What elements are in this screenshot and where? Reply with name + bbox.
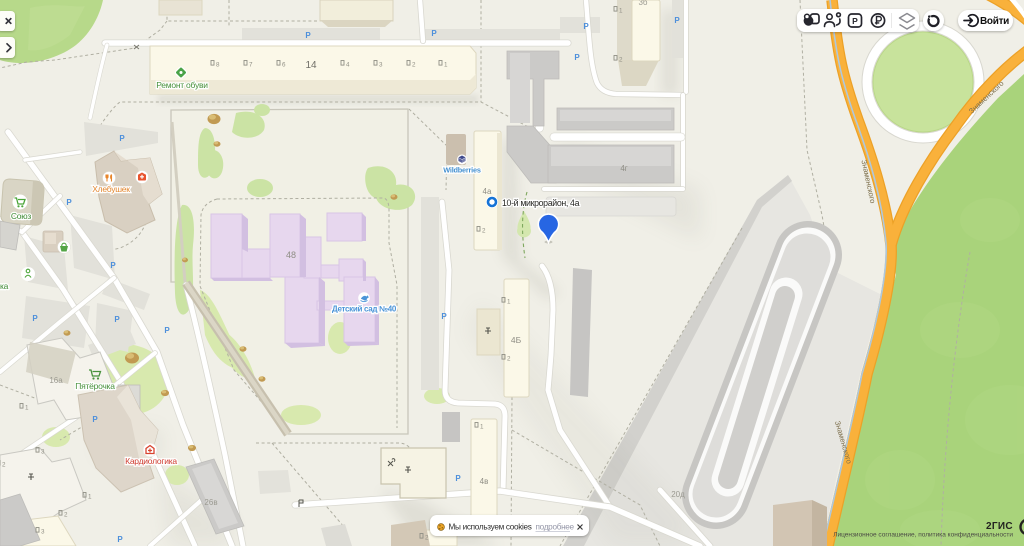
- svg-text:P: P: [852, 16, 858, 26]
- svg-text:16а: 16а: [49, 376, 63, 385]
- svg-text:P: P: [32, 314, 38, 323]
- svg-text:Ремонт обуви: Ремонт обуви: [156, 80, 208, 90]
- svg-text:Хлебушек: Хлебушек: [92, 184, 130, 194]
- svg-text:4а: 4а: [483, 187, 492, 196]
- svg-text:P: P: [66, 198, 72, 207]
- svg-text:1: 1: [507, 299, 511, 306]
- svg-text:P: P: [92, 415, 98, 424]
- svg-text:26в: 26в: [204, 498, 217, 507]
- svg-text:10-й микрорайон, 4а: 10-й микрорайон, 4а: [502, 198, 580, 208]
- svg-text:2: 2: [425, 535, 429, 542]
- svg-text:3: 3: [41, 529, 45, 536]
- svg-text:3: 3: [41, 449, 45, 456]
- svg-text:4Б: 4Б: [511, 335, 522, 345]
- svg-text:1: 1: [480, 424, 484, 431]
- svg-text:P: P: [455, 474, 461, 483]
- svg-text:P: P: [114, 315, 120, 324]
- svg-text:P: P: [117, 535, 123, 544]
- svg-text:3б: 3б: [638, 0, 647, 7]
- svg-text:2: 2: [2, 462, 6, 469]
- svg-text:Войти: Войти: [980, 16, 1009, 27]
- svg-text:2: 2: [412, 62, 416, 69]
- svg-text:1: 1: [444, 62, 448, 69]
- svg-text:Wildberries: Wildberries: [443, 166, 481, 175]
- svg-text:8: 8: [216, 62, 220, 69]
- svg-text:7: 7: [249, 62, 253, 69]
- svg-text:2: 2: [482, 228, 486, 235]
- svg-text:3: 3: [379, 62, 383, 69]
- svg-text:ка: ка: [0, 281, 9, 291]
- svg-text:P: P: [305, 31, 311, 40]
- svg-text:P: P: [574, 53, 580, 62]
- svg-text:Детский сад №40: Детский сад №40: [332, 305, 397, 314]
- svg-text:P: P: [164, 326, 170, 335]
- svg-text:P: P: [674, 16, 680, 25]
- svg-text:Мы используем cookies: Мы используем cookies: [449, 523, 532, 532]
- svg-text:Кардиологика: Кардиологика: [125, 456, 177, 466]
- svg-text:14: 14: [305, 60, 317, 71]
- svg-text:P: P: [119, 134, 125, 143]
- svg-text:2ГИС: 2ГИС: [986, 521, 1013, 532]
- svg-text:4в: 4в: [480, 477, 489, 486]
- svg-text:Пятёрочка: Пятёрочка: [75, 381, 115, 391]
- svg-text:подробнее: подробнее: [536, 523, 575, 532]
- svg-text:1: 1: [88, 494, 92, 501]
- svg-text:Союз: Союз: [11, 211, 31, 221]
- svg-text:2: 2: [64, 512, 68, 519]
- svg-text:P: P: [110, 261, 116, 270]
- svg-text:1: 1: [25, 405, 29, 412]
- svg-text:Лицензионное соглашение, полит: Лицензионное соглашение, политика конфид…: [833, 532, 1013, 539]
- svg-text:P: P: [441, 312, 447, 321]
- svg-text:20д: 20д: [671, 490, 685, 499]
- svg-text:4: 4: [346, 62, 350, 69]
- svg-text:1: 1: [619, 8, 623, 15]
- svg-text:2: 2: [507, 356, 511, 363]
- svg-text:P: P: [431, 29, 437, 38]
- svg-text:4г: 4г: [620, 164, 627, 173]
- svg-text:6: 6: [282, 62, 286, 69]
- svg-text:2: 2: [619, 57, 623, 64]
- svg-text:P: P: [583, 22, 589, 31]
- svg-text:48: 48: [286, 250, 296, 260]
